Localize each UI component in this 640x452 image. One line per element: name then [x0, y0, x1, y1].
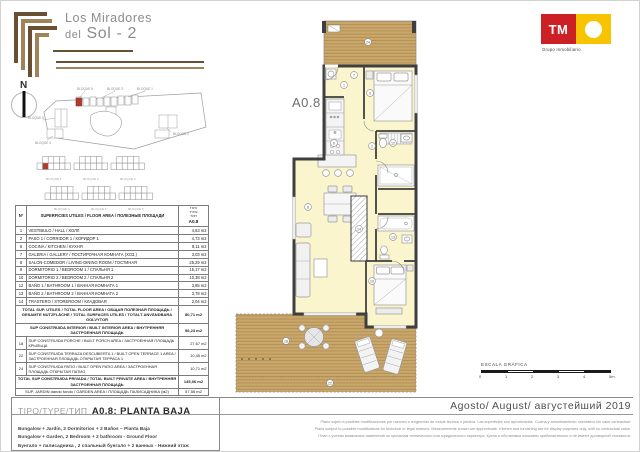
table-row: 12BAÑO 1 / BATHROOM 1 / ВАННАЯ КОМНАТА 1… [16, 282, 209, 290]
svg-text:13: 13 [391, 235, 395, 239]
svg-text:12: 12 [391, 141, 395, 145]
svg-text:10: 10 [370, 279, 374, 283]
header-unit: A0.8 [181, 219, 207, 225]
patio-wall-stub-left [322, 21, 326, 33]
block-diagram-label: BLOQUE 3 [109, 177, 147, 181]
svg-text:8: 8 [307, 205, 309, 209]
block-diagram: BLOQUE 3 [109, 151, 147, 181]
table-row: 9DORMITORIO 1 / BEDROOM 1 / СПАЛЬНЯ 115,… [16, 266, 209, 274]
window-living [293, 197, 296, 239]
site-plan: BLOQUE 5 BLOQUE 3 BLOQUE 1 BLOQUE 6 BLOQ… [27, 85, 213, 151]
block-diagram-label: BLOQUE 1 [35, 177, 73, 181]
block-diagram-label: BLOQUE 2 [72, 177, 110, 181]
svg-text:6: 6 [333, 141, 335, 145]
plan-sheet: Los Miradores del Sol - 2 N [0, 0, 640, 452]
svg-text:9: 9 [369, 91, 371, 95]
header-num: Nº [16, 206, 27, 227]
kitchen-counter-icon [326, 99, 344, 157]
type-description-lines: Bungalow + Jardín, 2 Dormitorios + 2 Bañ… [18, 425, 213, 450]
block-diagram: BLOQUE 2 [72, 151, 110, 181]
scale-ticks: 012345m [481, 374, 615, 381]
svg-text:24: 24 [366, 40, 370, 44]
areas-table-header: Nº SUPERFICIES UTILES / FLOOR AREA / ПОЛ… [16, 206, 209, 227]
brand-subtitle: Grupo Inmobiliario [541, 47, 613, 52]
table-row: 13BAÑO 2 / BATHROOM 2 / ВАННАЯ КОМНАТА 2… [16, 290, 209, 298]
sofa-icon [296, 243, 310, 297]
site-highlighted-unit [76, 98, 82, 106]
table-row: SUP CONSTRUIDA INTERIOR / BUILT INTERIOR… [16, 324, 209, 337]
logo-mark [9, 7, 61, 77]
logo-underline-2 [56, 61, 204, 63]
type-description-line: Бунгало + палисадника , 2 спальный бунга… [18, 442, 213, 450]
type-description-line: Bungalow + Jardín, 2 Dormitorios + 2 Bañ… [18, 425, 213, 433]
brand-logo: TM Grupo Inmobiliario [541, 14, 613, 52]
graphic-scale: ESCALA GRÁFICA 012345m [481, 362, 621, 381]
bed-2-icon [374, 265, 406, 305]
washer-icon [326, 69, 336, 79]
table-row: 1VESTIBULO / HALL / ХОЛЛ4,63 m2 [16, 227, 209, 235]
shower-1-icon [378, 165, 414, 186]
disclaimer-line: Plans subject to possible modifications … [231, 426, 631, 433]
table-row: TOTAL SUP. UTILES / TOTAL FLOOR AREA / О… [16, 306, 209, 324]
table-row: 7GALERIA / GALLERY / ПОСТИРОЧНАЯ КОМНАТА… [16, 250, 209, 258]
sink-2-icon [402, 235, 412, 243]
unit-label: A0.8 [292, 95, 321, 110]
header-desc: SUPERFICIES UTILES / FLOOR AREA / ПОЛЕЗН… [27, 206, 179, 227]
table-row: 22SUP CONSTRUIDA TERRAZA DESCUBIERTA 1 /… [16, 350, 209, 363]
toilet-1-icon [379, 134, 387, 148]
site-label-bloque2: BLOQUE 2 [173, 132, 189, 136]
svg-text:1: 1 [343, 83, 345, 87]
svg-text:7: 7 [353, 73, 355, 77]
table-row: 18SUP CONSTRUIDA PORCHE / BUILT PORCH AR… [16, 337, 209, 350]
svg-text:22: 22 [328, 381, 332, 385]
block-diagram: BLOQUE 1 [35, 151, 73, 181]
block-elevation-diagrams: BLOQUE 1BLOQUE 2BLOQUE 3BLOQUE 4BLOQUE 5… [31, 151, 163, 209]
disclaimer-line: Plano sujeto a posibles modificaciones p… [231, 419, 631, 426]
svg-text:14: 14 [357, 227, 361, 231]
table-row: 2PASO 1 / CORRIDOR 1 / КОРИДОР 14,73 m2 [16, 235, 209, 243]
window-bedroom2 [374, 326, 406, 329]
patio-wall-stub-right [412, 21, 416, 33]
brand-sun-icon [576, 14, 611, 44]
scale-bar [481, 370, 611, 373]
project-title: Los Miradores del Sol - 2 [65, 12, 152, 43]
date-line: Agosto/ August/ августейший 2019 [450, 400, 631, 412]
areas-table: Nº SUPERFICIES UTILES / FLOOR AREA / ПОЛ… [15, 205, 209, 396]
svg-text:2: 2 [371, 144, 373, 148]
scale-label: ESCALA GRÁFICA [481, 362, 621, 367]
sink-1-icon [401, 134, 412, 142]
brand-tm-mark: TM [541, 14, 576, 44]
site-label-bloque3: BLOQUE 3 [107, 87, 123, 91]
nightstand-2-icon [407, 265, 413, 271]
table-row: 6COCINA / KITCHEN / КУХНЯ8,11 m2 [16, 242, 209, 250]
header-type-cell: TIPO TYPE ТИП A0.8 [179, 206, 209, 227]
table-row: 8SALON-COMEDOR / LIVING-DINING ROOM / ГО… [16, 258, 209, 266]
bathtub-2-icon [378, 216, 414, 231]
type-description-line: Bungalow + Garden, 2 Bedroom + 2 bathroo… [18, 433, 213, 441]
site-label-bloque1: BLOQUE 1 [137, 87, 153, 91]
disclaimer-line: План с учетом возможных изменений по при… [231, 433, 631, 440]
site-label-bloque5: BLOQUE 5 [77, 87, 93, 91]
table-row: 10DORMITORIO 2 / BEDROOM 2 / СПАЛЬНЯ 210… [16, 274, 209, 282]
table-row: SUP. JARDIN dando fondo / GARDEN AREA / … [16, 388, 209, 396]
bed-1-icon [374, 71, 412, 121]
side-table-icon [375, 329, 383, 337]
project-title-line2: del Sol - 2 [65, 26, 152, 43]
type-box: TIPO/TYPE/ТИП A0.8: PLANTA BAJA Bungalow… [11, 397, 220, 451]
entry-opening [325, 65, 338, 68]
site-label-bloque4: BLOQUE 4 [35, 141, 51, 145]
armchair-icon [296, 223, 311, 237]
logo-underline-3 [56, 67, 204, 69]
table-row: TOTAL SUP CONSTRUIDA PRIVADA / TOTAL BUI… [16, 375, 209, 388]
table-row: 14TRASTERO / STOREROOM / КЛАДОВАЯ2,04 m2 [16, 298, 209, 306]
window-bedroom1 [415, 75, 418, 113]
floor-plan: A0.8 12678910121314182224 [226, 9, 476, 397]
sliding-door-living [304, 313, 356, 316]
bench-icon [376, 308, 402, 314]
header-type: TIPO TYPE ТИП [181, 207, 207, 219]
logo-underline-1 [53, 50, 133, 52]
disclaimer: Plano sujeto a posibles modificaciones p… [231, 419, 631, 440]
coffee-table-icon [314, 259, 327, 277]
nightstand-1-icon [366, 71, 373, 79]
type-title: A0.8: PLANTA BAJA [92, 406, 191, 417]
table-row: 24SUP CONSTRUIDA PATIO / BUILT OPEN PATI… [16, 362, 209, 375]
type-prefix: TIPO/TYPE/ТИП [18, 406, 87, 416]
site-label-bloque6: BLOQUE 6 [28, 116, 44, 120]
project-title-line1: Los Miradores [65, 12, 152, 25]
svg-text:18: 18 [284, 339, 288, 343]
